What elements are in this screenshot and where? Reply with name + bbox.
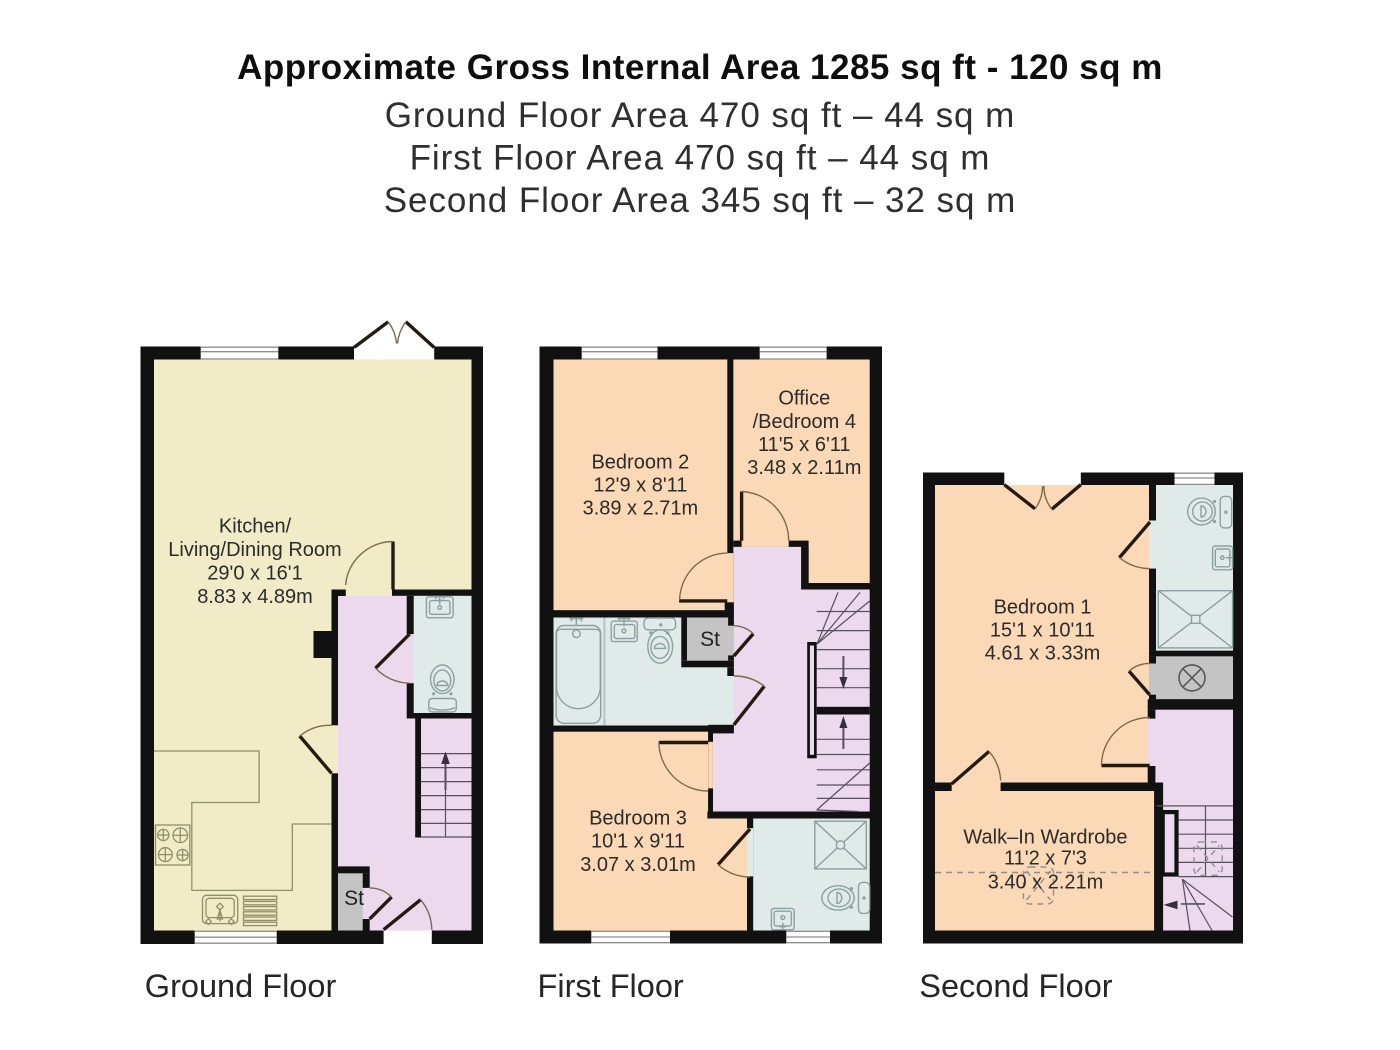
svg-text:St: St (700, 628, 720, 651)
svg-text:Second Floor Area 345 sq ft –: Second Floor Area 345 sq ft – 32 sq m (384, 181, 1016, 220)
svg-text:Ground Floor Area 470 sq ft –: Ground Floor Area 470 sq ft – 44 sq m (385, 96, 1015, 135)
svg-text:3.40 x 2.21m: 3.40 x 2.21m (988, 872, 1104, 894)
svg-text:8.83 x 4.89m: 8.83 x 4.89m (197, 586, 313, 608)
svg-text:Walk–In Wardrobe: Walk–In Wardrobe (963, 827, 1127, 849)
svg-text:29'0 x 16'1: 29'0 x 16'1 (207, 563, 303, 585)
svg-text:Bedroom 1: Bedroom 1 (994, 597, 1092, 619)
svg-text:Living/Dining Room: Living/Dining Room (168, 539, 341, 561)
svg-text:Office: Office (778, 388, 830, 410)
svg-text:/Bedroom 4: /Bedroom 4 (753, 411, 856, 433)
svg-text:First Floor: First Floor (538, 968, 684, 1004)
svg-text:St: St (344, 887, 364, 910)
svg-text:10'1 x 9'11: 10'1 x 9'11 (591, 831, 685, 853)
svg-text:15'1 x 10'11: 15'1 x 10'11 (990, 620, 1095, 642)
svg-text:3.89 x 2.71m: 3.89 x 2.71m (583, 498, 699, 520)
svg-text:11'5 x 6'11: 11'5 x 6'11 (758, 434, 851, 456)
svg-text:Kitchen/: Kitchen/ (219, 516, 292, 538)
svg-text:Approximate Gross Internal Are: Approximate Gross Internal Area 1285 sq … (237, 48, 1163, 87)
svg-text:3.07 x 3.01m: 3.07 x 3.01m (580, 854, 696, 876)
svg-text:3.48 x 2.11m: 3.48 x 2.11m (747, 457, 861, 479)
svg-text:Second Floor: Second Floor (919, 968, 1112, 1004)
svg-text:Bedroom 2: Bedroom 2 (591, 452, 689, 474)
svg-text:12'9 x 8'11: 12'9 x 8'11 (593, 475, 687, 497)
svg-text:Ground Floor: Ground Floor (145, 968, 337, 1004)
svg-text:Bedroom 3: Bedroom 3 (589, 807, 687, 829)
svg-text:11'2 x 7'3: 11'2 x 7'3 (1004, 847, 1087, 869)
svg-text:4.61 x 3.33m: 4.61 x 3.33m (985, 643, 1101, 665)
svg-text:First Floor Area 470 sq ft – 4: First Floor Area 470 sq ft – 44 sq m (410, 139, 991, 178)
